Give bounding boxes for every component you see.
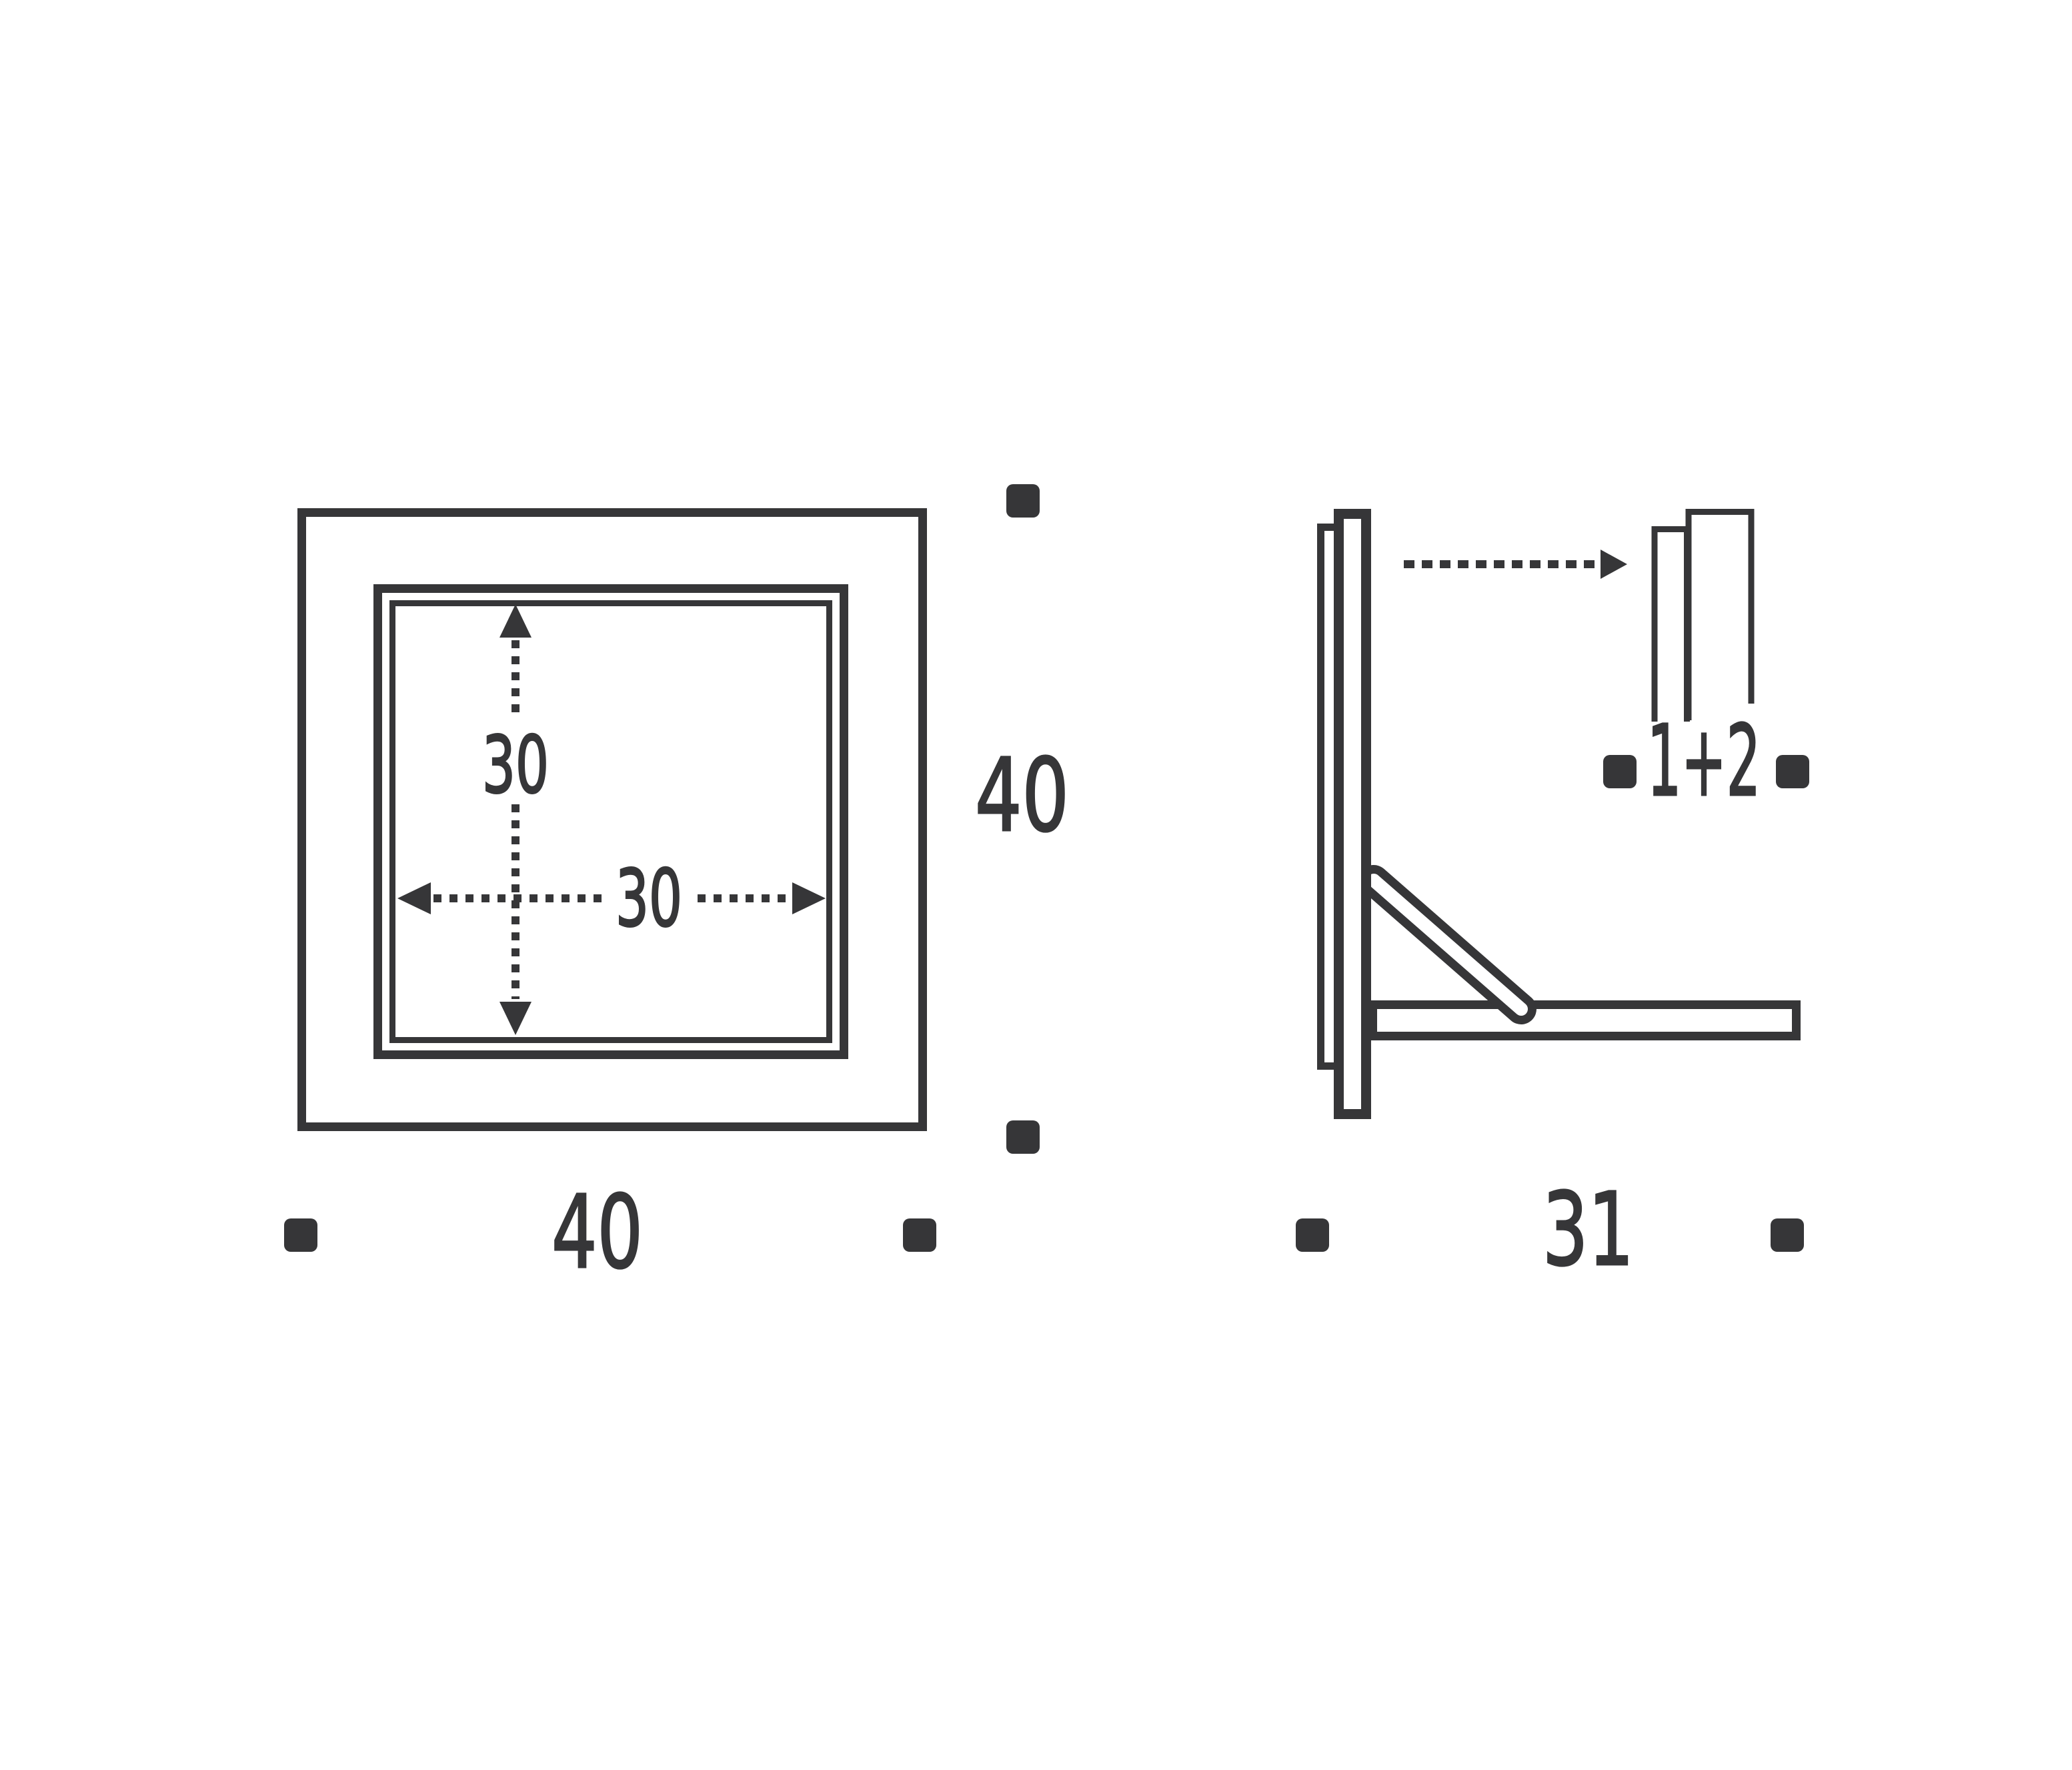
side-view: 1+2 31: [1296, 512, 1809, 1289]
square-bullet-icon: [284, 1218, 317, 1252]
depth-dimension: 31: [1296, 1171, 1804, 1288]
shelf-board: [1373, 1005, 1797, 1036]
square-bullet-icon: [1776, 755, 1809, 788]
inner-width-dimension-arrow: 30: [397, 852, 826, 944]
square-bullet-icon: [1771, 1218, 1804, 1252]
square-bullet-icon: [1006, 1120, 1040, 1154]
depth-label: 31: [1542, 1171, 1634, 1288]
outer-width-dimension: 40: [284, 1174, 936, 1291]
front-inner-frame: [393, 604, 830, 1040]
inner-width-label: 30: [616, 852, 682, 944]
arrow-right-icon: [792, 882, 826, 914]
panels-label: 1+2: [1647, 704, 1761, 818]
explode-arrow: [1404, 550, 1627, 579]
inner-height-dimension-arrow: 30: [482, 604, 549, 1035]
front-view: 30 30 40 40: [284, 484, 1069, 1291]
folding-brace-core: [1374, 880, 1521, 1009]
arrow-down-icon: [499, 1002, 532, 1035]
panel-detail-2: [1689, 512, 1751, 721]
technical-drawing-page: 30 30 40 40: [0, 0, 2072, 1770]
square-bullet-icon: [1006, 484, 1040, 518]
panels-dimension: 1+2: [1603, 704, 1809, 818]
panel-detail-1: [1655, 530, 1687, 722]
outer-height-dimension: 40: [975, 484, 1069, 1154]
wall-panel-front: [1339, 514, 1366, 1114]
square-bullet-icon: [1603, 755, 1637, 788]
arrow-left-icon: [397, 882, 431, 914]
square-bullet-icon: [903, 1218, 936, 1252]
arrow-up-icon: [499, 604, 532, 638]
panel-stack-detail: [1655, 512, 1751, 722]
square-bullet-icon: [1296, 1218, 1329, 1252]
outer-height-label: 40: [975, 737, 1069, 854]
arrow-right-icon: [1601, 550, 1627, 579]
front-mid-frame: [378, 589, 844, 1055]
inner-height-label: 30: [482, 719, 549, 811]
outer-width-label: 40: [552, 1174, 643, 1291]
furniture-dimension-drawing: 30 30 40 40: [0, 0, 2072, 1770]
